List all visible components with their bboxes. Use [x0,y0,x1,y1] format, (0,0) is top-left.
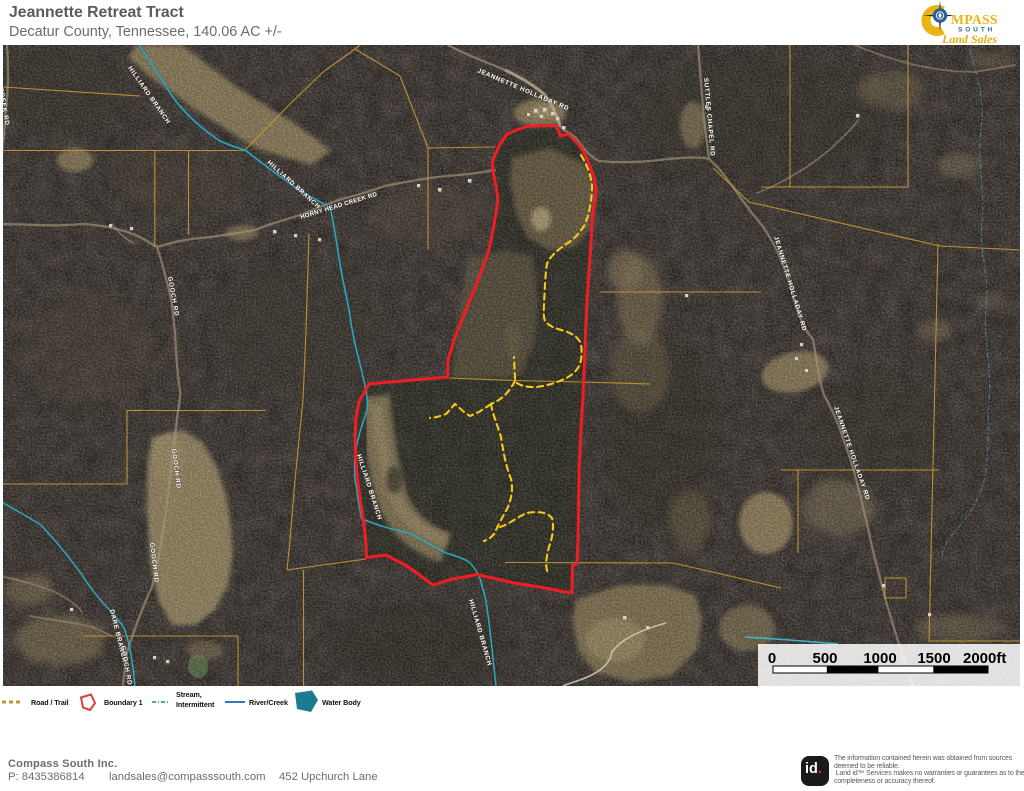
svg-text:1000: 1000 [863,650,896,667]
svg-text:River/Creek: River/Creek [249,698,288,707]
svg-text:Intermittent: Intermittent [176,700,215,709]
svg-text:1500: 1500 [917,650,950,667]
svg-text:Boundary 1: Boundary 1 [104,698,143,707]
svg-text:Stream,: Stream, [176,690,202,699]
svg-text:500: 500 [812,650,837,667]
svg-text:Land Sales: Land Sales [941,32,997,46]
svg-text:Road / Trail: Road / Trail [31,698,69,707]
svg-text:0: 0 [768,650,776,667]
svg-text:Water Body: Water Body [322,698,361,707]
svg-text:2000ft: 2000ft [963,650,1006,667]
svg-text:MPASS: MPASS [951,12,998,27]
